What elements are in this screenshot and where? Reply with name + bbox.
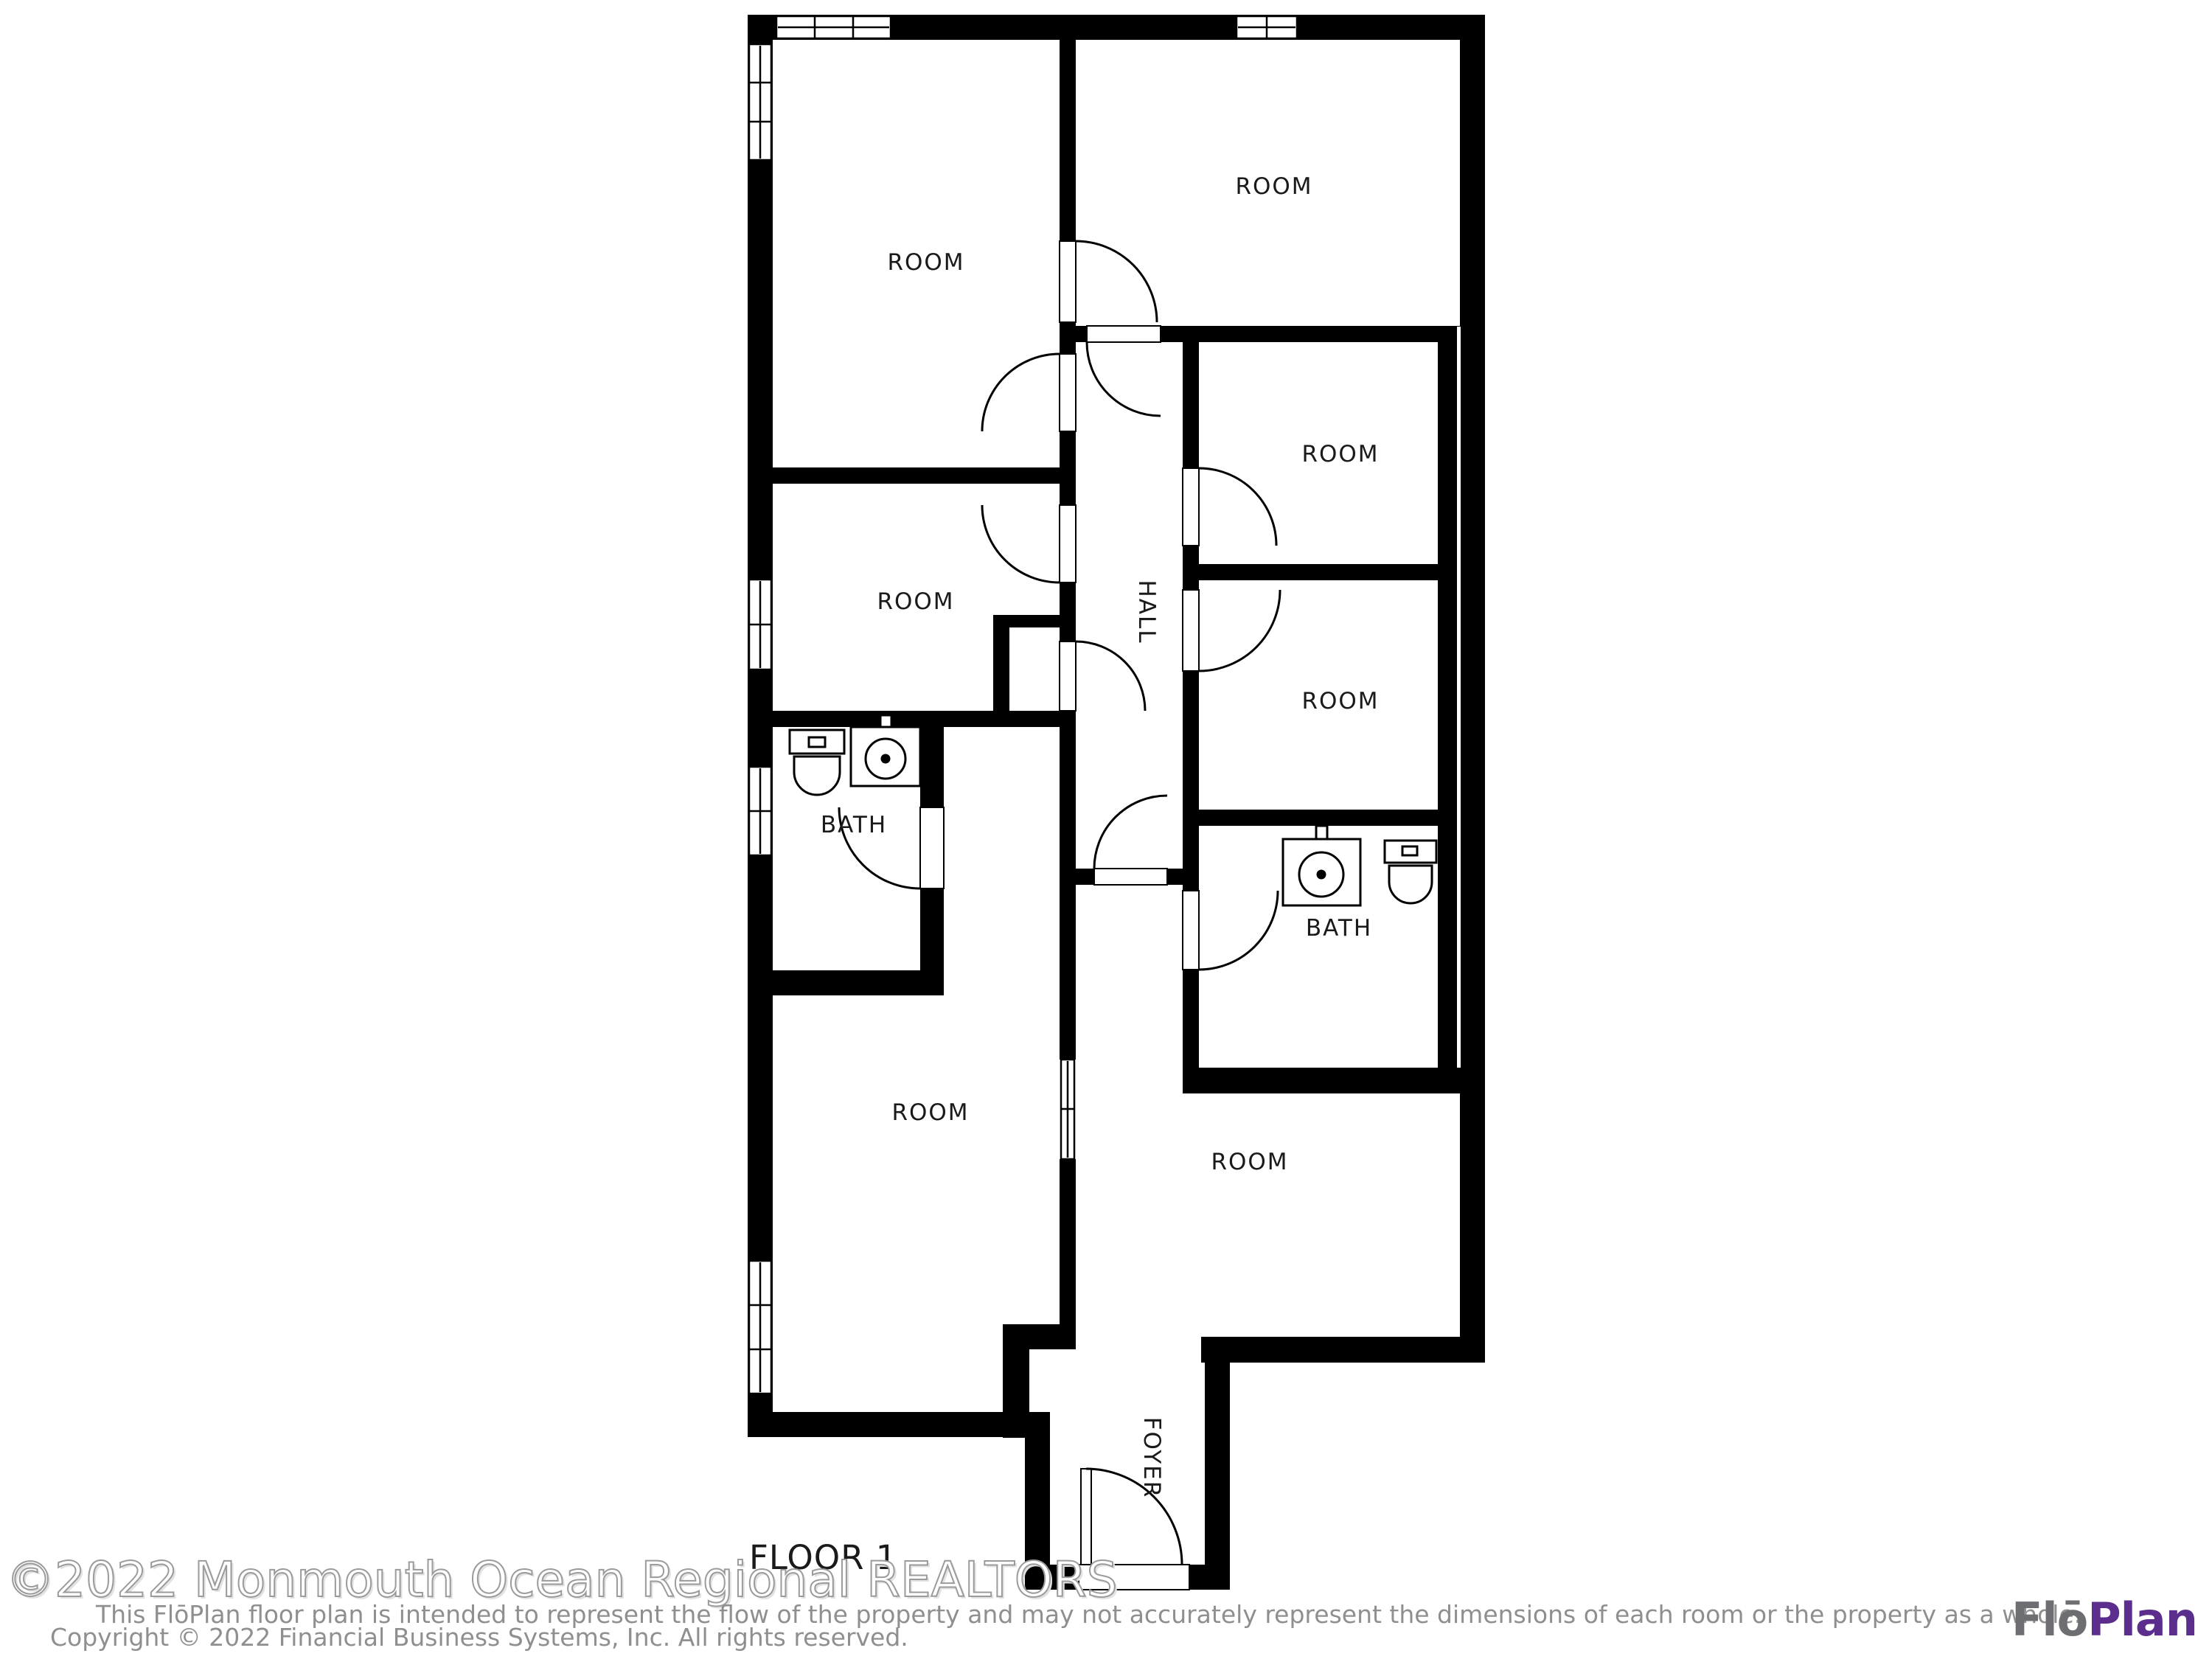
wall-bathright-bottom: [1183, 1068, 1485, 1093]
room-label: ROOM: [1235, 173, 1312, 200]
wall-bathleft-east-upper: [920, 727, 944, 807]
wall-hall-bottom-b: [1167, 869, 1183, 885]
wall-bottomleft-east-c: [1003, 1349, 1029, 1438]
door-leaf-entry: [1081, 1469, 1091, 1565]
room-labels: ROOM ROOM ROOM ROOM ROOM BATH BATH ROOM …: [821, 173, 1380, 1498]
door-arc-hall-top: [1087, 342, 1161, 416]
wall-bottomleft-east-b: [1060, 1159, 1076, 1324]
floplan-logo: FlōPlan: [2011, 1593, 2197, 1646]
wall-bottomright-room-bottom: [1201, 1337, 1485, 1363]
wall-rightrooms-divider: [1199, 564, 1485, 580]
windows: [749, 16, 1297, 1394]
window-interior: [1061, 1060, 1074, 1159]
window-left-bottomroom: [749, 1261, 771, 1394]
window-top-right: [1237, 16, 1297, 38]
room-label: ROOM: [887, 249, 964, 276]
window-top-left: [776, 16, 891, 38]
door-arc-hall-bottom: [1094, 796, 1167, 869]
door-leaf-topleft-room: [1060, 354, 1076, 431]
room-label: ROOM: [1301, 441, 1379, 467]
wall-closet-top: [993, 615, 1076, 627]
wall-bottomleft-jog: [1003, 1324, 1076, 1349]
logo-suffix: Plan: [2087, 1593, 2197, 1646]
door-leaf-rightlower-room: [1183, 590, 1199, 671]
wall-midleft-room-bottom: [748, 711, 1076, 727]
door-arc-topright-room: [1076, 241, 1157, 322]
room-label: ROOM: [1211, 1149, 1288, 1175]
wall-bottomleft-east-a: [1060, 869, 1076, 1060]
door-leaf-closet: [1060, 641, 1076, 711]
floorplan-drawing: ROOM ROOM ROOM ROOM ROOM BATH BATH ROOM …: [0, 0, 2212, 1659]
room-label: ROOM: [891, 1099, 969, 1126]
wall-hall-left-b: [1060, 431, 1076, 505]
door-leaf-bath-right: [1183, 891, 1199, 970]
logo-prefix: Flō: [2011, 1593, 2087, 1646]
door-leaf-hall-bottom: [1094, 869, 1167, 885]
wall-hall-left-d: [1060, 711, 1076, 869]
wall-foyer-right: [1205, 1363, 1230, 1590]
hall-label: HALL: [1133, 580, 1160, 644]
wall-bathright-top: [1199, 810, 1485, 826]
wall-topleft-room-bottom: [748, 467, 1076, 484]
wall-hall-right-a: [1183, 342, 1199, 468]
door-leaf-midleft-room: [1060, 505, 1076, 582]
bath-label: BATH: [1306, 915, 1372, 942]
wall-hall-bottom-a: [1076, 869, 1094, 885]
disclaimer-line2: Copyright © 2022 Financial Business Syst…: [50, 1623, 908, 1652]
toilet-icon: [1385, 841, 1436, 903]
room-label: ROOM: [877, 588, 954, 615]
room-label: ROOM: [1301, 688, 1379, 714]
window-left-midroom: [749, 580, 771, 669]
wall-hall-left-c: [1060, 582, 1076, 641]
wall-bathleft-bottom: [748, 970, 944, 995]
wall-right-outer: [1460, 15, 1485, 1363]
wall-seam: [1457, 327, 1461, 1068]
foyer-label: FOYER: [1138, 1417, 1165, 1499]
door-arc-closet: [1076, 641, 1145, 711]
wall-hall-top-a: [1060, 326, 1087, 342]
door-arc-entry: [1086, 1469, 1182, 1565]
sink-icon: [1283, 826, 1360, 905]
door-leaf-rightupper-room: [1183, 468, 1199, 546]
wall-hall-top-b: [1161, 326, 1485, 342]
wall-hall-right-d: [1183, 970, 1199, 1068]
wall-hall-right-b: [1183, 546, 1199, 590]
floorplan-page: ROOM ROOM ROOM ROOM ROOM BATH BATH ROOM …: [0, 0, 2212, 1659]
door-arc-rightlower-room: [1199, 590, 1280, 671]
door-leaf-bath-left: [920, 807, 944, 888]
wall-top-rooms-divider: [1060, 39, 1076, 241]
door-leaf-hall-top: [1087, 326, 1161, 342]
door-arc-bath-right: [1199, 891, 1278, 970]
door-arc-rightupper-room: [1199, 468, 1276, 546]
door-arc-midleft-room: [982, 505, 1060, 582]
bath-label: BATH: [821, 812, 887, 838]
window-left-bath: [749, 767, 771, 855]
window-left-top: [749, 44, 771, 160]
wall-hall-right-c: [1183, 671, 1199, 891]
door-arc-topleft-room: [982, 354, 1060, 431]
toilet-icon: [790, 730, 844, 795]
door-leaf-topright-room: [1060, 241, 1076, 322]
